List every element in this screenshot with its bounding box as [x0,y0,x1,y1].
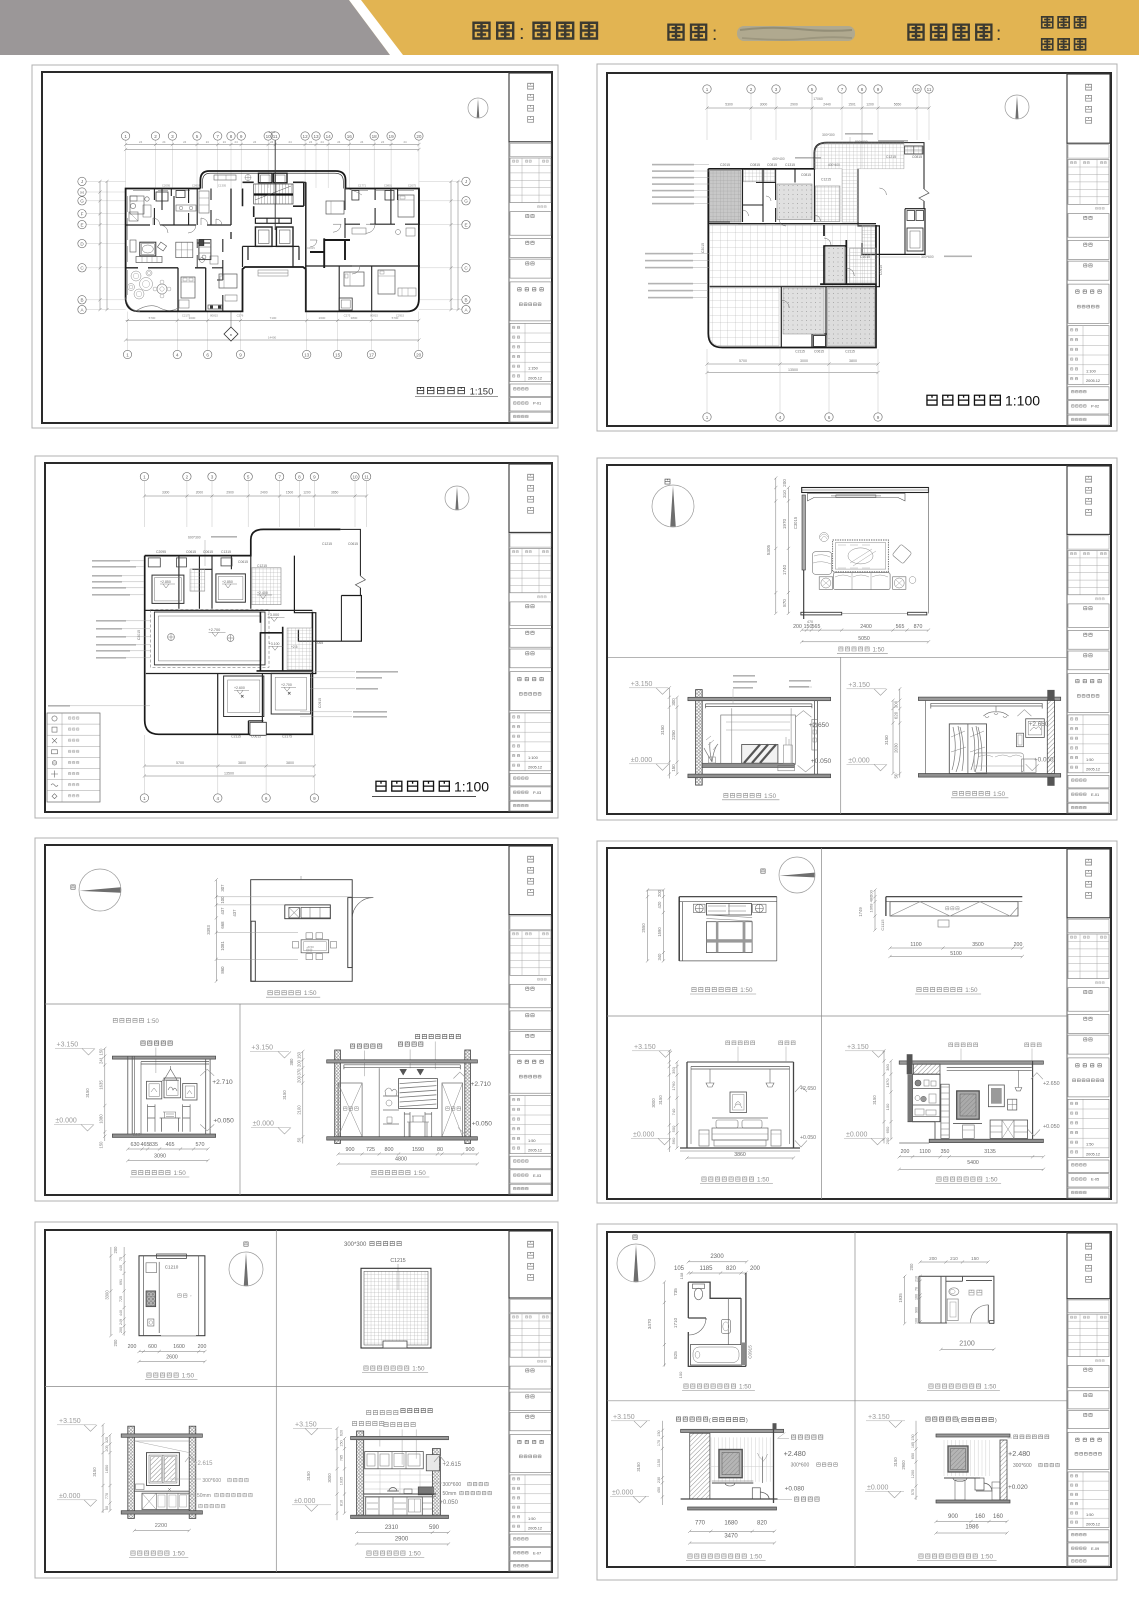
svg-text:): ) [995,1418,997,1424]
svg-text:C0915: C0915 [879,265,883,275]
svg-text:24: 24 [337,140,341,144]
svg-text:D: D [80,241,84,246]
svg-text:3: 3 [211,474,214,479]
svg-text:200: 200 [909,1263,914,1271]
svg-text:20: 20 [416,134,422,139]
svg-text:437: 437 [220,907,225,915]
svg-text:+2.700: +2.700 [209,628,221,632]
svg-text:480: 480 [869,895,874,902]
svg-text:440: 440 [119,1310,123,1316]
svg-text:5: 5 [811,87,814,92]
svg-text:170: 170 [657,1440,661,1446]
svg-text:24: 24 [403,140,407,144]
svg-text:1600: 1600 [173,1344,185,1350]
svg-text:3800: 3800 [238,761,246,765]
svg-text:19: 19 [389,134,395,139]
svg-text:2300: 2300 [710,1254,724,1260]
svg-text:210: 210 [950,1256,958,1261]
svg-text:325: 325 [105,1437,109,1443]
svg-text:±0.000: ±0.000 [55,1118,76,1125]
svg-text:5300: 5300 [725,103,733,107]
svg-text:C0615: C0615 [814,350,824,354]
svg-text:1970: 1970 [782,518,787,529]
svg-text:G: G [464,199,468,204]
svg-text:307: 307 [220,884,225,892]
svg-text:200: 200 [782,479,787,487]
svg-text:17060: 17060 [813,97,823,101]
svg-text:E-09: E-09 [1091,1546,1099,1551]
svg-text:1035: 1035 [340,1477,344,1485]
svg-text:+3.150: +3.150 [59,1418,81,1425]
svg-text:165: 165 [911,1442,915,1448]
svg-text:13500: 13500 [224,772,234,776]
svg-text:C0901: C0901 [192,184,201,188]
svg-text:+0.050: +0.050 [213,1118,234,1125]
svg-text:1080: 1080 [99,1114,104,1124]
svg-text:2100: 2100 [297,1105,302,1115]
svg-text:1710: 1710 [673,1317,678,1328]
svg-text:9: 9 [877,87,880,92]
svg-text:+3.100: +3.100 [269,642,280,646]
svg-text:1:50: 1:50 [1086,1142,1094,1147]
svg-text:C3015: C3015 [137,630,141,640]
svg-text:C1215: C1215 [390,1258,405,1264]
svg-text:1870: 1870 [885,1078,890,1088]
svg-text:3860: 3860 [734,1152,746,1158]
svg-text:1150: 1150 [657,1459,661,1467]
svg-text:380: 380 [289,1058,294,1066]
svg-text:3150: 3150 [282,1090,287,1100]
svg-text:+3.150: +3.150 [848,682,870,689]
svg-text:630: 630 [131,1142,140,1148]
svg-text:C1210: C1210 [165,1265,179,1270]
svg-text:3650: 3650 [331,491,339,495]
svg-text:230: 230 [657,1477,661,1483]
svg-text:50: 50 [894,773,899,778]
svg-text:±0.000: ±0.000 [59,1493,80,1500]
svg-text:835: 835 [149,1142,158,1148]
svg-text:2100: 2100 [959,1341,975,1348]
svg-text:810: 810 [340,1500,344,1506]
svg-text:17: 17 [369,352,375,357]
svg-text:1: 1 [706,415,709,420]
svg-text:785: 785 [340,1455,344,1461]
svg-text::: : [996,24,1001,45]
svg-text:2005.12: 2005.12 [1086,1151,1100,1156]
svg-text:200: 200 [113,1246,118,1254]
svg-text:200: 200 [901,1149,910,1155]
svg-text:50: 50 [105,1506,109,1510]
svg-text:2200: 2200 [155,1523,167,1529]
svg-text:7: 7 [216,134,219,139]
svg-text:900: 900 [948,1514,959,1520]
svg-text:2005.12: 2005.12 [528,1526,542,1531]
svg-text:3150: 3150 [306,1471,311,1481]
svg-text:G: G [80,199,84,204]
svg-text:150: 150 [99,1141,104,1149]
svg-text:870: 870 [782,599,787,607]
svg-text:560: 560 [671,1137,676,1144]
svg-text:740: 740 [671,1108,676,1115]
svg-text:+0.050: +0.050 [811,758,832,765]
svg-text:C2175: C2175 [282,735,292,739]
svg-text:50mm: 50mm [197,1493,211,1499]
svg-text:2310: 2310 [385,1525,399,1531]
svg-text:1:50: 1:50 [412,1366,425,1373]
svg-text:650: 650 [911,1453,915,1459]
svg-text:300*600: 300*600 [921,255,934,259]
svg-text:1068: 1068 [869,903,874,913]
svg-text:+2.850: +2.850 [160,580,171,584]
svg-text:E-05: E-05 [1091,1177,1099,1182]
svg-text:600: 600 [148,1344,157,1350]
svg-text:1680: 1680 [724,1521,738,1527]
svg-text:1100: 1100 [910,942,921,948]
svg-text:24: 24 [289,140,293,144]
svg-text:150: 150 [99,1048,104,1056]
svg-text:6: 6 [265,796,268,801]
svg-text:E: E [80,222,83,227]
svg-text:3000: 3000 [651,1098,656,1108]
svg-text:+0.050: +0.050 [1043,1124,1060,1130]
svg-text:14: 14 [326,134,332,139]
svg-text:C0915: C0915 [748,1345,753,1359]
svg-text:3150: 3150 [660,725,665,735]
svg-text:7: 7 [841,87,844,92]
svg-text:+3.000: +3.000 [268,613,280,617]
svg-text:C0615: C0615 [348,542,358,546]
svg-text:J: J [81,179,83,184]
svg-text:E-07: E-07 [533,1550,541,1555]
svg-text:+0.080: +0.080 [785,1486,805,1493]
svg-text:200: 200 [113,1339,118,1347]
svg-text:C1215: C1215 [886,155,896,159]
svg-text:C: C [80,266,84,271]
svg-text:50: 50 [297,1137,302,1142]
svg-text:C3015: C3015 [793,516,798,529]
svg-text:770: 770 [695,1521,706,1527]
svg-text:1:50: 1:50 [1086,1512,1094,1517]
svg-text:E-01: E-01 [1091,792,1099,797]
svg-text:C2175: C2175 [182,314,191,318]
svg-text:1200: 1200 [866,103,874,107]
svg-text:2005.12: 2005.12 [528,375,542,380]
svg-text:300*300: 300*300 [822,133,835,137]
svg-text:+2.700: +2.700 [281,683,292,687]
svg-text:3800: 3800 [286,761,294,765]
svg-text:1: 1 [124,134,127,139]
svg-text:±0.000: ±0.000 [633,1132,654,1139]
svg-text:2005.12: 2005.12 [528,765,542,770]
svg-text:200: 200 [297,1075,302,1083]
svg-text:+2.650: +2.650 [800,1086,816,1092]
svg-text:1:100: 1:100 [1086,368,1097,373]
svg-text:600*300: 600*300 [188,536,201,540]
svg-text:1986: 1986 [965,1525,979,1531]
svg-text:C275: C275 [344,314,351,318]
svg-text:900: 900 [915,1307,919,1313]
svg-text:1:50: 1:50 [174,1170,187,1177]
svg-text:241: 241 [99,1056,104,1064]
svg-text:C1215: C1215 [821,178,831,182]
svg-text:+2.480: +2.480 [784,1449,806,1458]
svg-text:725: 725 [119,1296,123,1302]
svg-text:2400: 2400 [860,624,872,630]
svg-text:2005.12: 2005.12 [1086,378,1100,383]
svg-text:+0.050: +0.050 [472,1121,493,1128]
svg-text:+2.615: +2.615 [443,1462,462,1468]
svg-text:1:50: 1:50 [993,791,1005,798]
svg-text:C2095: C2095 [162,184,171,188]
svg-text:±0.000: ±0.000 [846,1132,867,1139]
svg-text:3300: 3300 [105,1290,110,1300]
svg-text:±0.000: ±0.000 [294,1498,315,1505]
svg-text:C0815: C0815 [912,155,922,159]
svg-text:1:50: 1:50 [740,987,753,994]
svg-text:+0.050: +0.050 [1034,757,1054,764]
svg-text:8: 8 [298,474,301,479]
svg-text:1200: 1200 [911,1470,915,1478]
svg-text:50mm: 50mm [443,1491,457,1497]
svg-text:7100: 7100 [270,316,277,320]
svg-text:C0815: C0815 [767,163,777,167]
svg-text:3393: 3393 [206,925,211,935]
svg-text:): ) [746,1418,748,1424]
svg-text:+0.020: +0.020 [1008,1484,1028,1491]
svg-text:+3.150: +3.150 [251,1045,273,1052]
svg-text:7: 7 [278,474,281,479]
svg-text:3: 3 [775,87,778,92]
svg-text:13: 13 [304,352,310,357]
svg-text:900: 900 [346,1147,355,1153]
svg-text:1185: 1185 [700,1266,714,1272]
svg-text:1100: 1100 [919,1149,930,1155]
svg-text:24: 24 [309,140,313,144]
svg-text:24: 24 [253,140,257,144]
svg-text:76: 76 [915,1287,919,1291]
svg-text:24: 24 [270,140,274,144]
svg-text:±0.000: ±0.000 [612,1490,633,1497]
svg-text:5050: 5050 [858,636,870,642]
svg-text:80815: 80815 [370,314,378,318]
svg-text:150: 150 [657,1430,661,1436]
svg-text:2600: 2600 [319,316,326,320]
svg-text:340: 340 [657,953,662,961]
svg-text:±0.000: ±0.000 [848,758,869,765]
svg-text:C3015: C3015 [701,243,705,253]
svg-text:2900: 2900 [790,103,798,107]
svg-text:210: 210 [915,1276,919,1282]
svg-text:E-03: E-03 [533,1173,541,1178]
svg-text:5400: 5400 [967,1160,979,1166]
svg-text:3: 3 [171,134,174,139]
svg-text:200: 200 [128,1344,137,1350]
svg-text:575: 575 [911,1489,915,1495]
svg-text:±0.000: ±0.000 [867,1485,888,1492]
svg-text:300*600: 300*600 [791,1463,810,1469]
svg-text:6: 6 [206,352,209,357]
svg-text:C1315: C1315 [221,550,231,554]
svg-text:1:100: 1:100 [454,779,489,795]
svg-text:1635: 1635 [99,1080,104,1090]
svg-text:+3.150: +3.150 [295,1422,317,1429]
svg-text:150: 150 [671,764,676,772]
svg-text:1:150: 1:150 [528,366,539,371]
svg-text:1500: 1500 [286,491,294,495]
svg-text:1: 1 [126,352,129,357]
svg-text:80: 80 [437,1147,443,1153]
svg-text:2440: 2440 [823,103,831,107]
svg-text:B: B [230,333,232,337]
svg-text:C0615: C0615 [251,735,261,739]
svg-text:400*400: 400*400 [772,157,785,161]
svg-text:+3.150: +3.150 [868,1414,890,1421]
svg-text:800: 800 [385,1147,394,1153]
svg-text:1:50: 1:50 [528,1516,536,1521]
svg-text:C2095: C2095 [156,550,166,554]
svg-text:200: 200 [750,1266,761,1272]
svg-text:1:50: 1:50 [528,1138,536,1143]
svg-text:C276: C276 [237,314,244,318]
svg-text:1:50: 1:50 [147,1018,159,1025]
svg-text:H: H [80,190,83,195]
svg-text:1740: 1740 [782,564,787,575]
svg-text:440: 440 [119,1265,123,1271]
svg-text:200: 200 [1014,942,1023,948]
svg-text:14400: 14400 [268,336,277,340]
svg-text:1:50: 1:50 [750,1554,763,1561]
svg-text:2000: 2000 [196,491,204,495]
svg-text::: : [712,24,717,45]
svg-text:668: 668 [220,921,225,929]
svg-text:470: 470 [807,620,813,624]
svg-text:300*300: 300*300 [344,1242,367,1248]
svg-text:1:100: 1:100 [1005,393,1040,409]
svg-text:105: 105 [674,1266,685,1272]
svg-text:205: 205 [105,1445,109,1451]
svg-text:1200: 1200 [303,491,311,495]
svg-text:C0615: C0615 [238,560,248,564]
svg-text:108: 108 [679,1272,684,1279]
svg-text:2: 2 [154,134,157,139]
svg-text:C: C [464,266,468,271]
svg-text:+2.650: +2.650 [1043,1081,1060,1087]
svg-text:100: 100 [885,1103,890,1110]
svg-text:150: 150 [340,1440,344,1446]
svg-text:+2.600: +2.600 [234,686,245,690]
svg-text:825: 825 [673,1351,678,1359]
svg-text:1:50: 1:50 [414,1170,427,1177]
svg-text:P-01: P-01 [533,401,541,406]
svg-text:200: 200 [885,1137,890,1144]
svg-text:+0.050: +0.050 [800,1135,816,1141]
svg-text:C1015: C1015 [860,255,870,259]
svg-text:3000: 3000 [760,103,768,107]
svg-text:1081: 1081 [220,941,225,951]
svg-text:2400: 2400 [260,491,268,495]
svg-text:5400: 5400 [269,130,276,134]
svg-text:°: ° [190,1294,192,1299]
svg-text:2600: 2600 [166,1355,178,1361]
svg-text:8: 8 [230,134,233,139]
svg-text:1: 1 [143,796,146,801]
svg-text:24: 24 [381,140,385,144]
svg-text:770: 770 [105,1493,109,1499]
svg-text:820: 820 [757,1521,768,1527]
svg-text:100: 100 [678,1371,683,1378]
svg-text:1:150: 1:150 [470,386,494,397]
svg-text:1:100: 1:100 [528,755,539,760]
svg-text:10: 10 [352,474,358,479]
svg-text:160: 160 [993,1514,1004,1520]
svg-text:160: 160 [915,1294,919,1300]
svg-text:200: 200 [297,1059,302,1067]
svg-text:3135: 3135 [984,1149,996,1155]
svg-text:C2115: C2115 [231,735,241,739]
svg-text:10: 10 [266,134,272,139]
svg-text:5: 5 [247,474,250,479]
svg-text:4: 4 [217,796,220,801]
svg-text:900: 900 [466,1147,475,1153]
svg-text:310: 310 [782,490,787,498]
svg-text:10: 10 [914,87,920,92]
svg-text:3150: 3150 [893,1457,898,1467]
svg-text:±0.000: ±0.000 [253,1121,274,1128]
svg-text:5: 5 [196,134,199,139]
svg-text:3150: 3150 [658,1095,663,1105]
svg-text:75: 75 [119,1257,123,1261]
svg-text:C2915: C2915 [396,314,405,318]
svg-text:+2.480: +2.480 [1008,1449,1030,1458]
svg-text:3470: 3470 [724,1534,738,1540]
svg-text:3000: 3000 [327,1473,332,1483]
svg-text:24: 24 [235,140,239,144]
svg-text:725: 725 [366,1147,375,1153]
svg-text:1935: 1935 [898,1293,903,1303]
svg-text:200: 200 [119,1327,123,1333]
svg-text:420: 420 [657,901,662,909]
svg-text:C1115: C1115 [880,919,885,931]
svg-text:+3.150: +3.150 [847,1044,869,1051]
svg-text:24: 24 [360,140,364,144]
svg-text:E: E [464,222,467,227]
svg-text:2900: 2900 [395,1537,409,1543]
svg-text:2900: 2900 [226,491,234,495]
svg-text:870: 870 [914,624,923,630]
svg-text:B: B [80,298,83,303]
svg-text:1650: 1650 [105,1465,109,1473]
svg-text:2550: 2550 [641,923,646,933]
svg-text:12: 12 [303,134,309,139]
svg-text:3150: 3150 [636,1462,641,1472]
svg-text:2030: 2030 [894,743,899,753]
svg-text:C065: C065 [315,641,323,645]
svg-text:1: 1 [706,87,709,92]
svg-text:16: 16 [347,134,353,139]
svg-text:C0801: C0801 [384,184,393,188]
svg-text:3500: 3500 [972,942,984,948]
svg-text:C0815: C0815 [750,163,760,167]
svg-text:+2.615: +2.615 [194,1461,213,1467]
svg-text:C1015: C1015 [307,246,315,250]
svg-text:2005.12: 2005.12 [1086,767,1100,772]
svg-text:24: 24 [321,140,325,144]
svg-text:200: 200 [198,1344,207,1350]
svg-text:20: 20 [416,352,422,357]
svg-text:5700: 5700 [176,761,184,765]
svg-text:+2.710: +2.710 [212,1079,233,1086]
svg-text:9: 9 [239,352,242,357]
